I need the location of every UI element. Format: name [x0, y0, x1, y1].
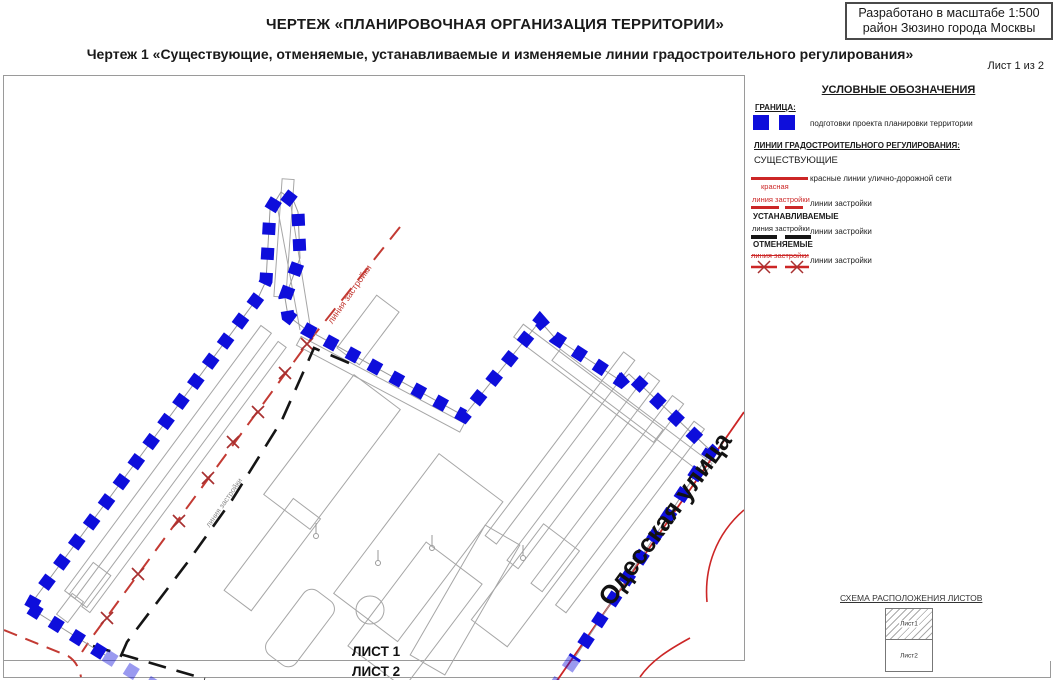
cancelled-swatch	[749, 259, 811, 275]
legend-established-heading: УСТАНАВЛИВАЕМЫЕ	[753, 212, 839, 221]
red-building-line-label: линия застройки	[326, 263, 374, 326]
legend-cancelled-heading: ОТМЕНЯЕМЫЕ	[753, 240, 813, 249]
sheet-scheme-label-2: Лист2	[899, 652, 919, 659]
existing-building-line-bar-2	[785, 206, 803, 209]
legend-reg-lines-heading: ЛИНИИ ГРАДОСТРОИТЕЛЬНОГО РЕГУЛИРОВАНИЯ:	[754, 141, 960, 150]
established-bar-1	[751, 235, 777, 239]
sheet-scheme-cell-2: Лист2	[886, 640, 932, 671]
sheet-scheme-title: СХЕМА РАСПОЛОЖЕНИЯ ЛИСТОВ	[840, 593, 982, 603]
legend-panel: УСЛОВНЫЕ ОБОЗНАЧЕНИЯ ГРАНИЦА: подготовки…	[745, 75, 1052, 661]
street-label: Одесская улица	[592, 426, 738, 611]
legend-boundary-item: подготовки проекта планировки территории	[810, 119, 1040, 128]
sheet1-map-label: ЛИСТ 1	[352, 644, 401, 659]
legend-existing-heading: СУЩЕСТВУЮЩИЕ	[754, 155, 838, 166]
legend-title: УСЛОВНЫЕ ОБОЗНАЧЕНИЯ	[745, 84, 1052, 96]
sheet2-map-label: ЛИСТ 2	[352, 664, 400, 679]
boundary-chain-sheet2	[105, 655, 574, 680]
page-subtitle: Чертеж 1 «Существующие, отменяемые, уста…	[0, 46, 1000, 62]
scale-line: Разработано в масштабе 1:500	[850, 6, 1048, 21]
legend-cancelled-item: линии застройки	[810, 256, 872, 265]
established-caption: линия застройки	[752, 224, 810, 233]
established-bar-2	[785, 235, 811, 239]
sheet-scheme-diagram: Лист1 Лист2	[885, 608, 933, 672]
page-title: ЧЕРТЕЖ «ПЛАНИРОВОЧНАЯ ОРГАНИЗАЦИЯ ТЕРРИТ…	[0, 16, 990, 33]
red-line-caption: красная	[761, 182, 789, 191]
legend-existing-item: линии застройки	[810, 199, 872, 208]
legend-red-lines-item: красные линии улично-дорожной сети	[810, 174, 1040, 183]
curb-curve-lower	[640, 638, 690, 677]
red-line-swatch	[751, 177, 808, 180]
existing-building-line-caption: линия застройки	[752, 195, 810, 204]
legend-established-item: линии застройки	[810, 227, 872, 236]
cancelled-building-line	[4, 227, 400, 677]
district-line: район Зюзино города Москвы	[850, 21, 1048, 36]
legend-boundary-heading: ГРАНИЦА:	[755, 103, 796, 112]
sheet-scheme-cell-1: Лист1	[886, 609, 932, 640]
curb-curve-upper	[707, 510, 744, 602]
scale-info-box: Разработано в масштабе 1:500 район Зюзин…	[845, 2, 1053, 40]
boundary-swatch-square-1	[753, 115, 769, 130]
boundary-swatch-square-2	[779, 115, 795, 130]
sheet-scheme-label-1: Лист1	[899, 621, 919, 628]
red-dash-bottom-left	[4, 630, 81, 677]
drawing-sheet: ЧЕРТЕЖ «ПЛАНИРОВОЧНАЯ ОРГАНИЗАЦИЯ ТЕРРИТ…	[0, 0, 1056, 680]
existing-building-line-bar-1	[751, 206, 779, 209]
sheet-indicator: Лист 1 из 2	[988, 60, 1045, 72]
territory-map: Одесская улица линия застройки линия зас…	[4, 75, 744, 680]
survey-marks	[314, 523, 526, 566]
gray-building-line-label: линия застройки	[204, 476, 245, 529]
